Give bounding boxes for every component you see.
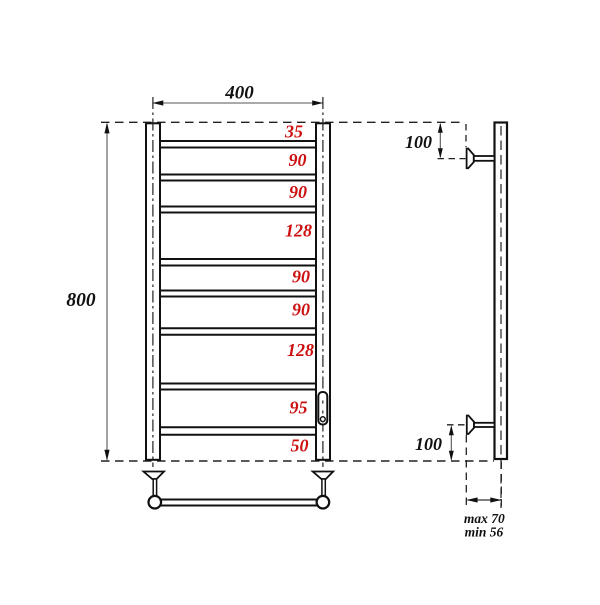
- svg-text:90: 90: [292, 267, 310, 287]
- svg-text:400: 400: [224, 83, 254, 104]
- svg-text:90: 90: [289, 182, 307, 202]
- svg-text:128: 128: [287, 340, 314, 360]
- svg-text:35: 35: [284, 122, 303, 142]
- svg-text:min 56: min 56: [465, 525, 504, 540]
- svg-text:90: 90: [292, 300, 310, 320]
- svg-text:90: 90: [289, 150, 307, 170]
- svg-text:50: 50: [291, 436, 309, 456]
- svg-text:100: 100: [405, 132, 432, 152]
- svg-text:100: 100: [415, 434, 442, 454]
- svg-text:128: 128: [285, 221, 312, 241]
- svg-text:800: 800: [66, 290, 96, 311]
- svg-text:95: 95: [290, 398, 308, 418]
